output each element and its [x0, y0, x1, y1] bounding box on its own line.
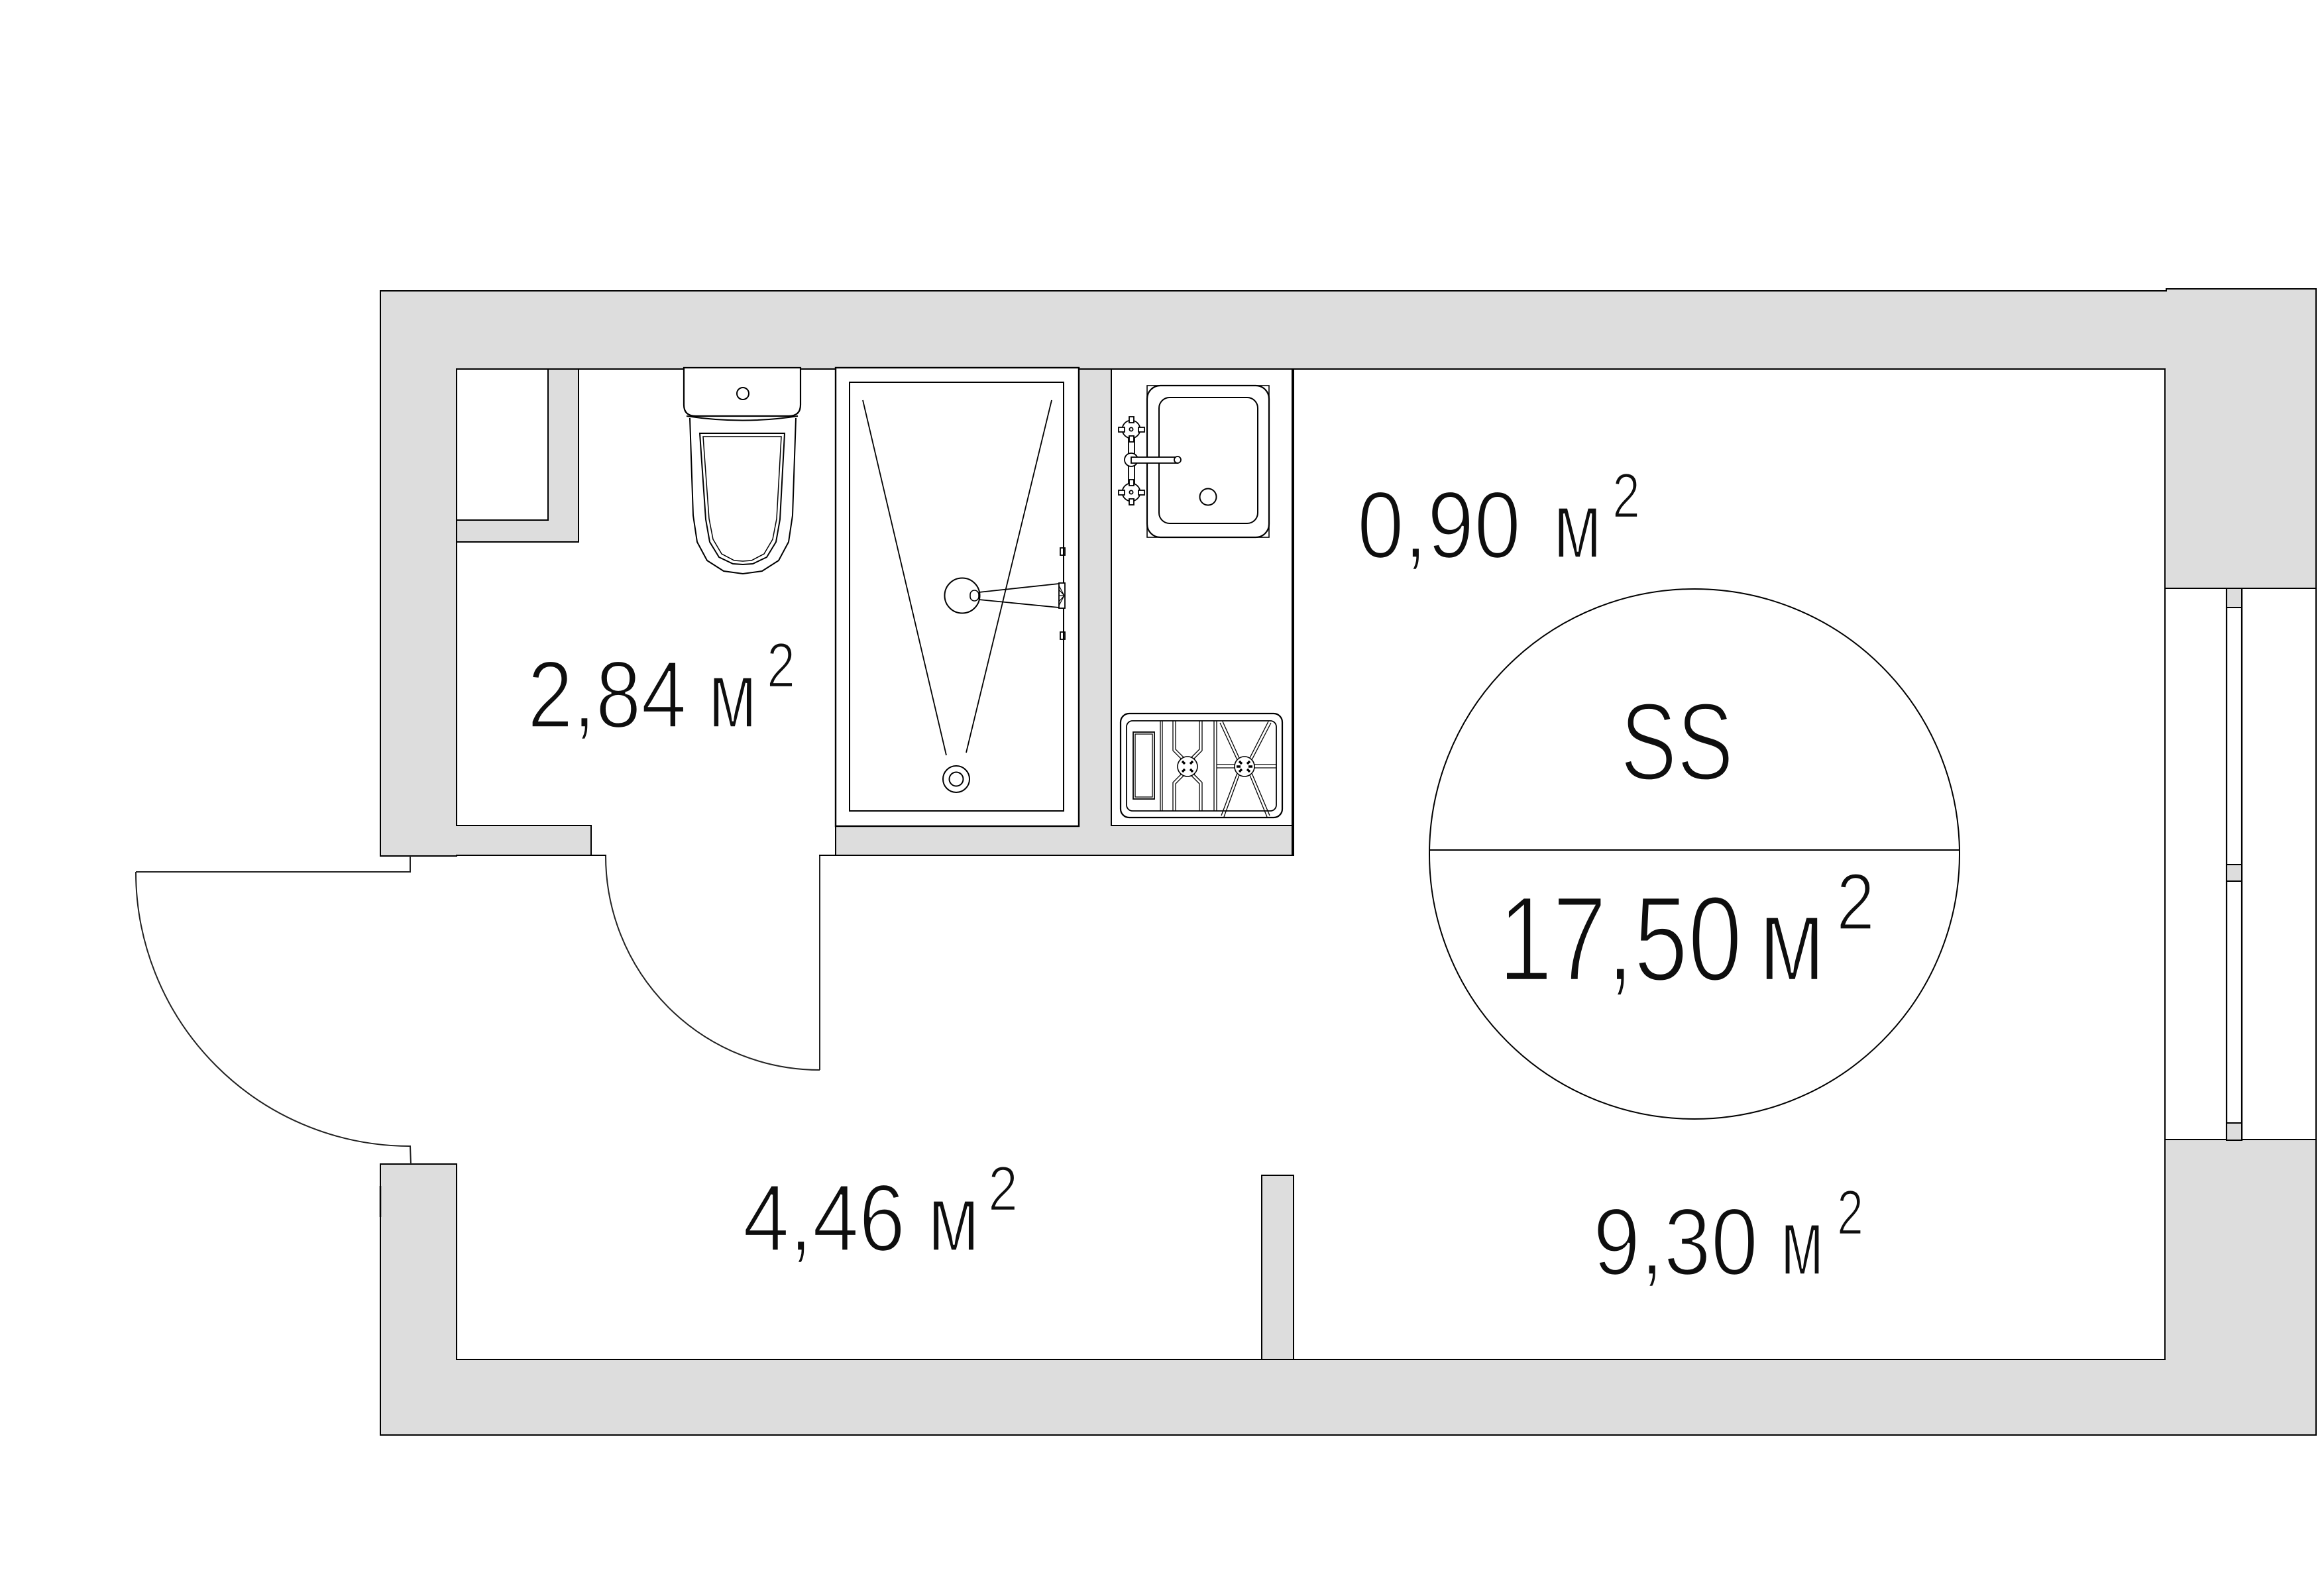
svg-text:2: 2 [1837, 1177, 1863, 1248]
svg-text:4,46: 4,46 [743, 1165, 905, 1271]
svg-text:17,50: 17,50 [1498, 871, 1742, 1006]
svg-text:м: м [1781, 1189, 1824, 1295]
svg-text:9,30: 9,30 [1593, 1189, 1758, 1295]
svg-text:м: м [1553, 472, 1602, 578]
svg-text:0,90: 0,90 [1357, 472, 1521, 578]
svg-text:м: м [708, 641, 757, 748]
svg-text:2: 2 [1836, 857, 1875, 947]
svg-text:м: м [928, 1165, 979, 1271]
svg-text:2: 2 [988, 1153, 1018, 1224]
svg-text:2,84: 2,84 [527, 641, 687, 748]
svg-text:SS: SS [1620, 680, 1734, 804]
svg-text:2: 2 [1612, 460, 1640, 531]
svg-text:2: 2 [767, 630, 795, 701]
svg-text:м: м [1759, 871, 1825, 1006]
